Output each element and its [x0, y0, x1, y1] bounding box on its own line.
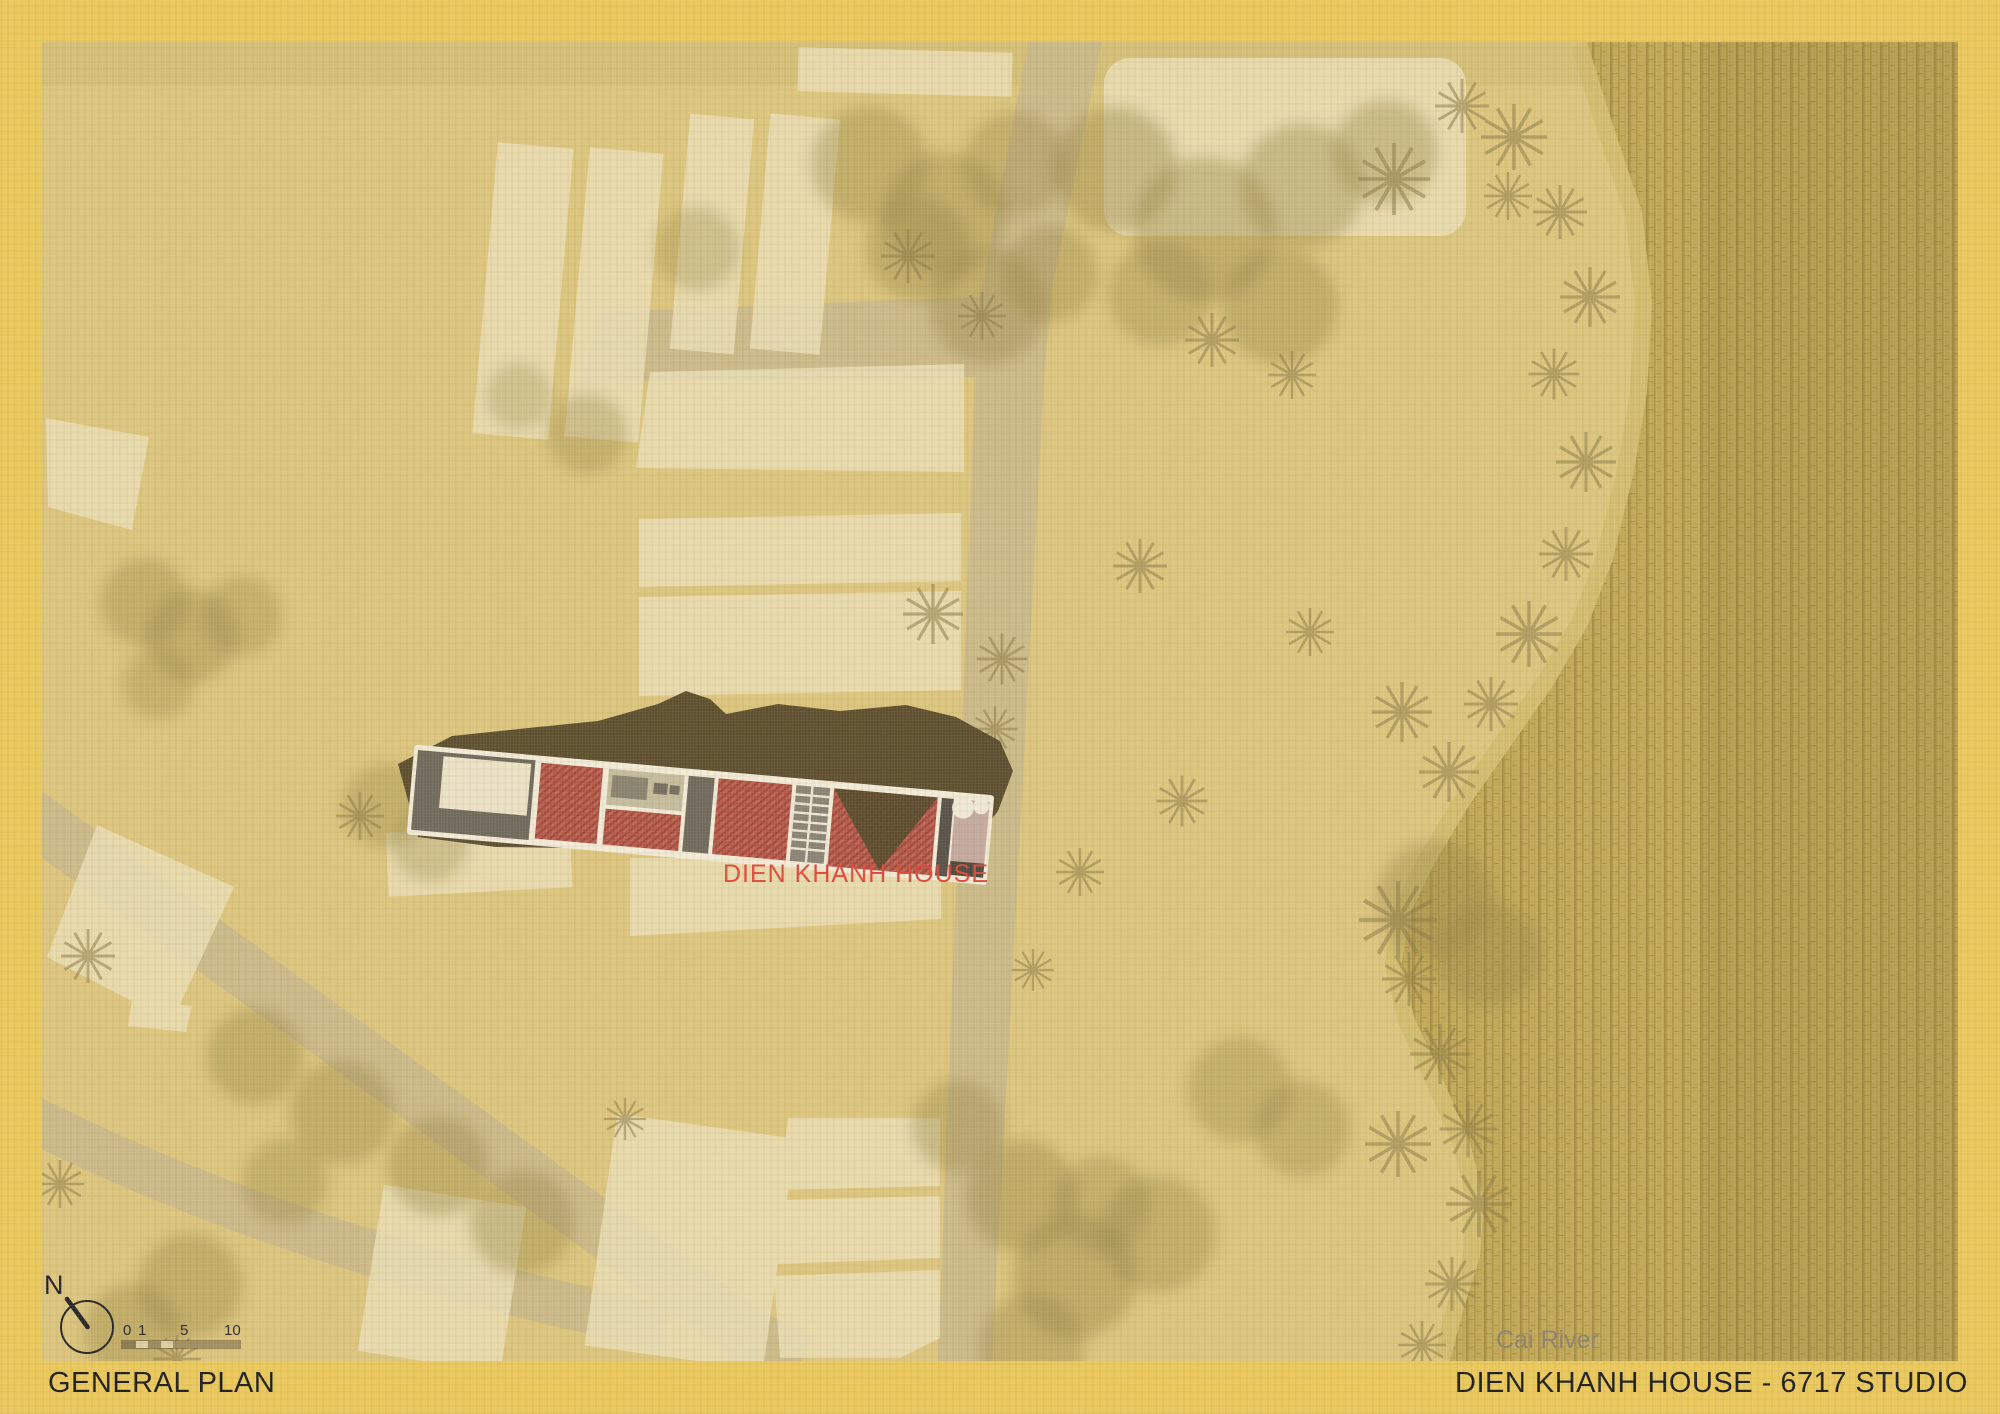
- room-red-1: [535, 763, 603, 844]
- house-name-label: DIEN KHANH HOUSE: [723, 862, 989, 887]
- plot: [639, 513, 961, 587]
- drawing-title: GENERAL PLAN: [48, 1369, 275, 1398]
- site-map: [42, 42, 1958, 1361]
- scale-bar: 0 1 5 10: [122, 1322, 252, 1352]
- room-red-3: [712, 778, 792, 860]
- plot: [797, 47, 1012, 97]
- river-name-label: Cai River: [1496, 1328, 1599, 1353]
- stair-court: [790, 785, 830, 864]
- room-red-2: [602, 809, 681, 851]
- plot: [776, 1196, 940, 1264]
- scale-tick: 1: [138, 1322, 146, 1339]
- kitchen-counter: [611, 775, 649, 800]
- scale-tick: 5: [180, 1322, 188, 1339]
- scale-tick: 10: [224, 1322, 241, 1339]
- project-credit-title: DIEN KHANH HOUSE - 6717 STUDIO: [1455, 1369, 1968, 1398]
- compass-icon: [58, 1297, 116, 1355]
- plot: [639, 591, 961, 696]
- river-deep-shade: [1702, 42, 1958, 1361]
- site-map-drawing: [42, 42, 1958, 1361]
- plot: [636, 364, 964, 472]
- kitchen-fixture: [669, 785, 680, 795]
- plot: [585, 1114, 796, 1361]
- scale-tick: 0: [123, 1322, 131, 1339]
- north-compass: [58, 1297, 116, 1355]
- plot: [774, 1270, 940, 1358]
- site-plan-sheet: DIEN KHANH HOUSE Cai River GENERAL PLAN …: [0, 0, 2000, 1414]
- room-entry: [439, 756, 531, 815]
- kitchen-fixture: [653, 783, 668, 795]
- north-label: N: [44, 1272, 64, 1299]
- scale-bar-graphic: [122, 1341, 240, 1348]
